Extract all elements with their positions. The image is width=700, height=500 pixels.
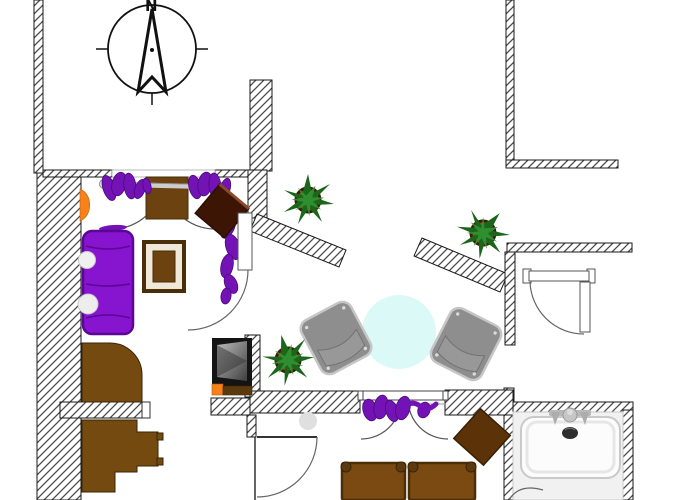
wall-segment [250,80,272,171]
wall-segment [506,160,618,168]
armchair-left [297,298,375,377]
interior-door-right [523,269,595,334]
potted-plant-hall [284,174,334,224]
compass-rose: N [96,0,208,105]
bathtub [521,417,620,478]
sofa [78,231,133,334]
door-leaf [580,282,590,332]
floor-plan: N [0,0,700,500]
wall-segment [505,252,515,345]
wall-segment [507,243,632,252]
stair-steps [82,420,163,492]
bathtub-drain [562,427,578,439]
sofa-pillow [78,294,98,314]
sofa-pillow [79,252,96,269]
wall-segment [623,410,633,500]
square-table-diamond [454,409,510,465]
wall-segment [211,398,250,415]
round-side-table [362,295,436,369]
bathtub-faucet [549,408,591,425]
corner-desk [82,343,142,402]
wall-segment [43,170,112,177]
wall-segment [250,391,360,413]
wall-light [299,412,317,430]
door-swing-arc [257,437,317,497]
fireplace-accent [212,384,223,395]
fireplace-stove [212,338,252,395]
wall-segment [248,170,267,218]
wall-segment [506,0,514,168]
wall-end-cap [142,402,150,418]
wall-segment [34,0,43,173]
armchair-right [427,305,504,384]
floor-plan-drawing: N [0,0,700,500]
wardrobe [358,391,448,439]
door-swing-arc [530,282,584,334]
door-leaf [238,213,252,270]
wall-segment [60,402,142,418]
door-swing-arc [188,270,248,330]
compass-north-label: N [145,0,158,15]
wall-segment [37,173,81,500]
wall-segment-diagonal [250,214,346,267]
wall-lamp [80,189,90,221]
wall-segment [247,415,256,437]
bathroom [509,408,623,500]
bottom-door [257,437,317,497]
coffee-table [142,240,186,293]
